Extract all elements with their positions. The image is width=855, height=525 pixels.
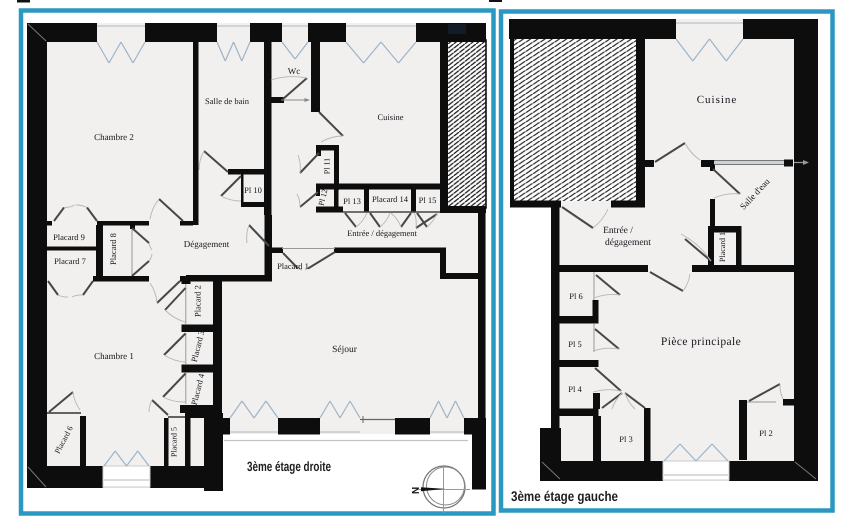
svg-text:Placard 1: Placard 1 [277,261,309,271]
svg-text:Placard 8: Placard 8 [108,233,118,265]
svg-text:3ème étage droite: 3ème étage droite [247,459,331,474]
svg-text:Dégagement: Dégagement [184,239,230,249]
svg-text:Chambre 2: Chambre 2 [94,132,134,142]
svg-text:Placard 5: Placard 5 [170,427,179,457]
svg-text:Chambre 1: Chambre 1 [94,351,134,361]
svg-text:Pl 4: Pl 4 [568,384,582,394]
svg-text:Placard 1: Placard 1 [718,232,727,262]
svg-text:N: N [409,487,420,494]
svg-text:Wc: Wc [288,66,301,76]
svg-text:dégagement: dégagement [605,238,651,248]
svg-text:Entrée / dégagement: Entrée / dégagement [347,228,417,238]
svg-text:Placard 2: Placard 2 [193,285,203,317]
svg-text:Cuisine: Cuisine [378,112,404,122]
svg-text:Pl 6: Pl 6 [569,291,582,301]
svg-text:Cuisine: Cuisine [697,94,738,106]
svg-text:Pl 2: Pl 2 [759,428,772,438]
svg-text:Salle de bain: Salle de bain [205,96,250,106]
svg-text:Placard 7: Placard 7 [54,256,86,266]
svg-text:Pl 10: Pl 10 [244,185,262,195]
svg-text:Pl 13: Pl 13 [343,196,361,206]
svg-text:Pièce principale: Pièce principale [661,336,741,348]
svg-text:Séjour: Séjour [332,345,358,355]
svg-text:3ème étage gauche: 3ème étage gauche [511,488,618,504]
svg-text:Entrée /: Entrée / [603,226,633,236]
svg-text:Pl 3: Pl 3 [619,434,632,444]
svg-text:Placard 14: Placard 14 [372,194,409,204]
svg-text:Pl 11: Pl 11 [323,158,332,174]
svg-text:Placard 9: Placard 9 [53,232,85,242]
svg-text:Pl 15: Pl 15 [419,195,437,205]
svg-text:Pl 5: Pl 5 [568,339,581,349]
